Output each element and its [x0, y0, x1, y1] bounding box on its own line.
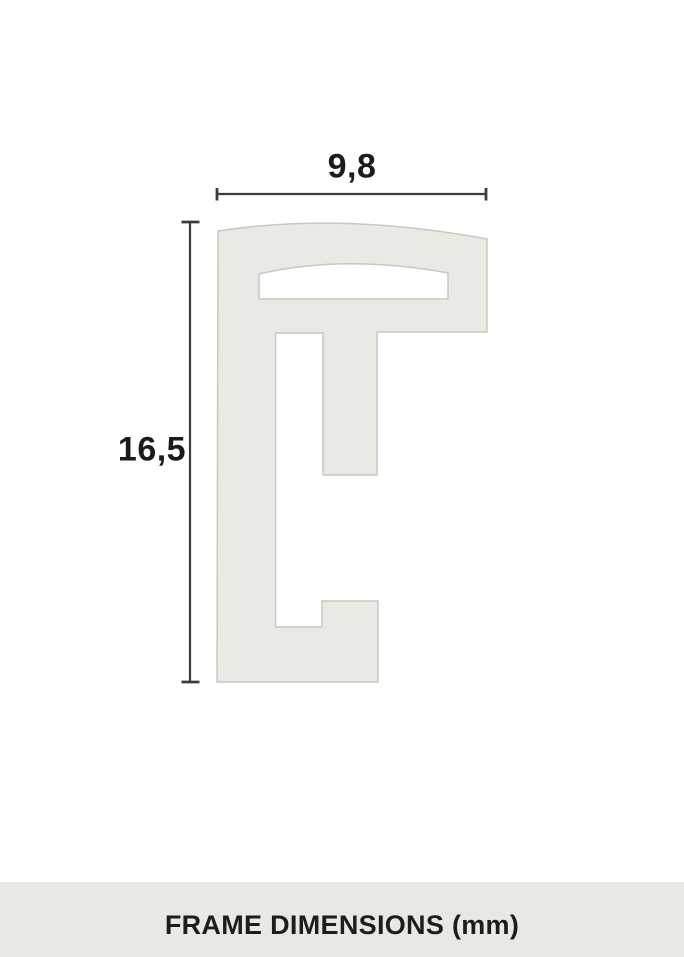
profile-diagram-svg: [0, 0, 684, 957]
frame-profile-shape: [217, 223, 487, 682]
height-dimension-label: 16,5: [118, 431, 186, 470]
width-dimension: [217, 188, 486, 201]
footer-title: FRAME DIMENSIONS (mm): [165, 910, 519, 941]
footer-bar: FRAME DIMENSIONS (mm): [0, 882, 684, 957]
width-dimension-label: 9,8: [328, 148, 377, 187]
frame-dimensions-page: 9,8 16,5 FRAME DIMENSIONS (mm): [0, 0, 684, 957]
